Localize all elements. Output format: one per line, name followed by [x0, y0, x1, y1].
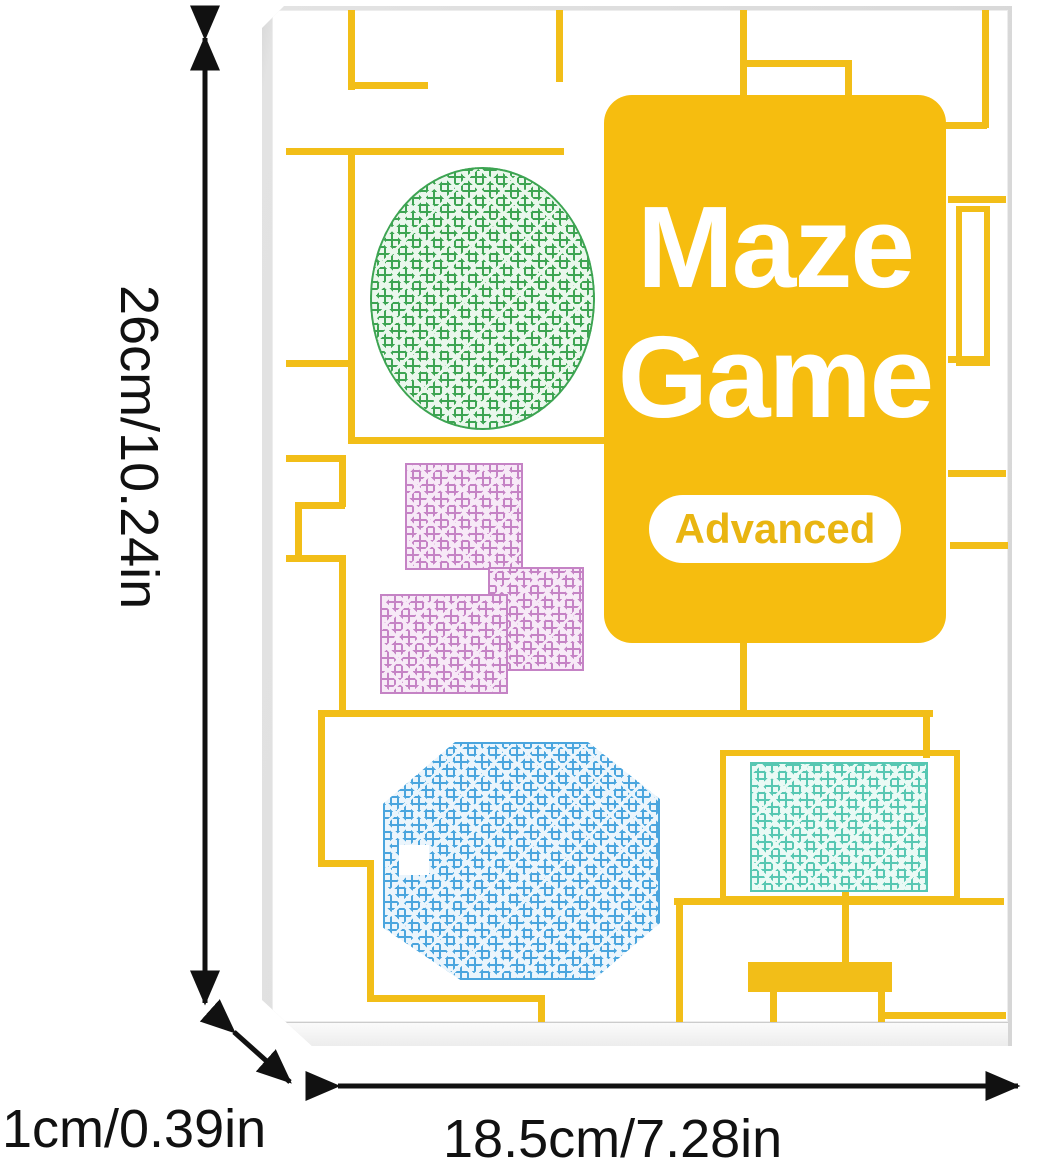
- green-oval-maze: [370, 167, 595, 430]
- maze-path-line: [770, 990, 777, 1022]
- maze-path-line: [740, 60, 852, 67]
- maze-path-line: [948, 196, 1006, 203]
- maze-path-bar: [748, 962, 892, 992]
- height-dimension-label: 26cm/10.24in: [108, 285, 170, 609]
- teal-rectangle-maze: [750, 762, 928, 892]
- maze-path-line: [286, 148, 564, 155]
- maze-path-line: [348, 10, 355, 90]
- maze-path-line: [982, 10, 989, 128]
- book-3d-slab: Maze Game Advanced: [250, 6, 1012, 1046]
- maze-path-line: [348, 437, 606, 444]
- book-bottom-edge: [272, 1022, 1008, 1047]
- maze-path-line: [740, 10, 747, 98]
- maze-path-line: [948, 470, 1006, 477]
- maze-path-line: [348, 148, 355, 444]
- maze-path-line: [740, 638, 747, 716]
- maze-path-box: [956, 206, 990, 366]
- maze-path-line: [295, 502, 302, 560]
- maze-path-line: [878, 1012, 1006, 1019]
- maze-path-line: [556, 10, 563, 82]
- advanced-badge-label: Advanced: [675, 505, 876, 552]
- maze-path-line: [295, 502, 345, 509]
- product-title-line2: Game: [618, 313, 932, 443]
- maze-path-line: [948, 356, 988, 363]
- product-title-line1: Maze: [637, 183, 913, 313]
- depth-dimension-label: 1cm/0.39in: [2, 1098, 266, 1160]
- maze-path-line: [339, 455, 346, 507]
- maze-path-line: [538, 995, 545, 1022]
- maze-path-line: [286, 455, 346, 462]
- title-card: Maze Game Advanced: [604, 95, 946, 643]
- maze-path-line: [367, 995, 545, 1002]
- maze-path-line: [286, 555, 344, 562]
- maze-path-line: [348, 82, 428, 89]
- purple-maze-square-bottom: [380, 594, 508, 694]
- maze-path-line: [318, 860, 374, 867]
- depth-arrow-icon: [234, 1032, 290, 1082]
- maze-path-line: [367, 860, 374, 1000]
- maze-start-marker: [399, 845, 429, 875]
- maze-path-line: [676, 898, 683, 1022]
- book-front-cover: Maze Game Advanced: [272, 10, 1008, 1022]
- maze-path-line: [318, 710, 325, 865]
- width-dimension-label: 18.5cm/7.28in: [443, 1108, 782, 1170]
- maze-path-line: [318, 710, 933, 717]
- blue-octagon-maze: [383, 742, 660, 980]
- maze-path-line: [950, 542, 1008, 549]
- maze-path-line: [339, 555, 346, 715]
- purple-maze-square-top: [405, 463, 523, 570]
- maze-path-line: [674, 898, 1004, 905]
- maze-path-line: [286, 360, 352, 367]
- advanced-badge: Advanced: [649, 495, 902, 563]
- product-dimension-diagram: Maze Game Advanced 26cm/10.24in 1cm/0.39…: [0, 0, 1048, 1173]
